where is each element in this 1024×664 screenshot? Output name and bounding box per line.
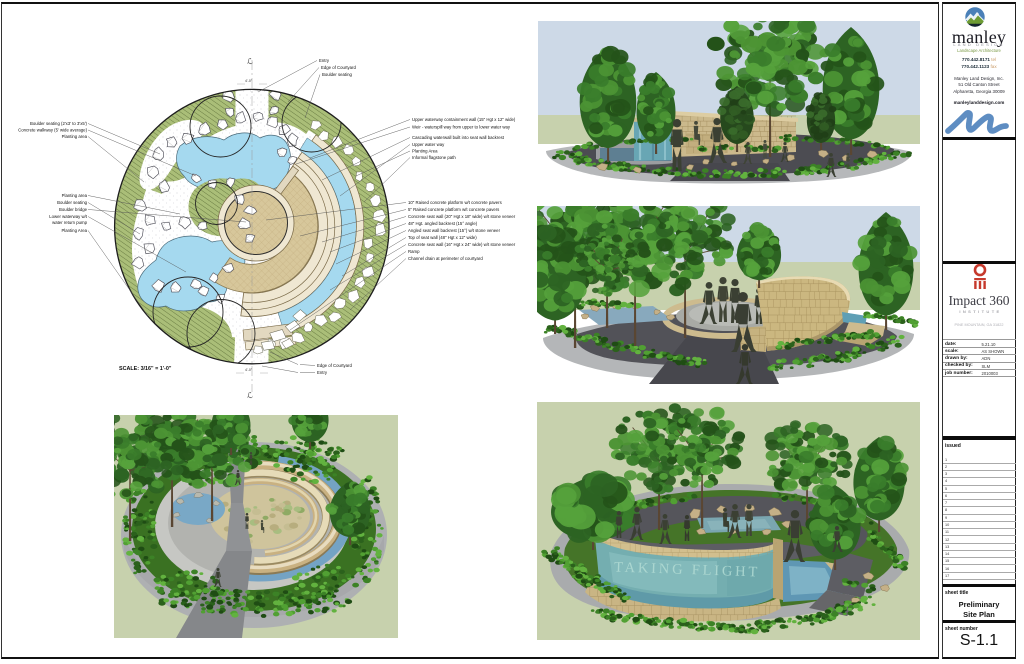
- svg-text:10" Raised concrete platform w: 10" Raised concrete platform w/t concret…: [408, 200, 502, 205]
- svg-text:5" Raised concrete platform w/: 5" Raised concrete platform w/t concrete…: [408, 207, 499, 212]
- svg-text:water return pump: water return pump: [52, 220, 87, 225]
- svg-text:Ramp: Ramp: [408, 249, 420, 254]
- svg-text:Informal flagstone path: Informal flagstone path: [412, 155, 456, 160]
- svg-text:Entry: Entry: [319, 58, 330, 63]
- svg-text:Edge of Courtyard: Edge of Courtyard: [317, 363, 352, 368]
- svg-text:Lower waterway w/t: Lower waterway w/t: [49, 214, 88, 219]
- svg-text:Concrete walkway (5' wide aver: Concrete walkway (5' wide average): [18, 128, 87, 133]
- svg-text:Boulder seating (2'x3' to 3'x5: Boulder seating (2'x3' to 3'x5'): [30, 121, 88, 126]
- svg-text:48" Hgt. angled backrest (15°: 48" Hgt. angled backrest (15° angle): [408, 221, 478, 226]
- svg-text:Planting area: Planting area: [62, 193, 88, 198]
- svg-text:Entry: Entry: [317, 370, 328, 375]
- svg-text:Weir - waterspill way from upp: Weir - waterspill way from upper to lowe…: [412, 125, 511, 130]
- svg-text:Boulder seating: Boulder seating: [322, 72, 352, 77]
- svg-text:Concrete seat wall (16" Hgt x: Concrete seat wall (16" Hgt x 24" wide) …: [408, 242, 516, 247]
- svg-text:Edge of Courtyard: Edge of Courtyard: [321, 65, 356, 70]
- svg-text:Cascading waterwall built into: Cascading waterwall built into seat wall…: [412, 135, 505, 140]
- svg-text:Planting Area: Planting Area: [61, 228, 87, 233]
- svg-text:Planting Area: Planting Area: [412, 149, 438, 154]
- svg-text:Top of seat wall (48" Hgt x 12: Top of seat wall (48" Hgt x 12" wide): [408, 235, 477, 240]
- svg-text:Concrete seat wall (20" Hgt x: Concrete seat wall (20" Hgt x 18" wide) …: [408, 214, 516, 219]
- svg-text:Planting area: Planting area: [62, 134, 88, 139]
- svg-text:Upper water way: Upper water way: [412, 142, 445, 147]
- svg-text:Channel drain at perimeter of: Channel drain at perimeter of courtyard: [408, 256, 483, 261]
- svg-text:Upper waterway containment wal: Upper waterway containment wall (15" Hgt…: [412, 117, 516, 122]
- svg-text:Angled seat wall backrest (15°: Angled seat wall backrest (15°) w/t ston…: [408, 228, 501, 233]
- svg-text:Boulder seating: Boulder seating: [57, 200, 87, 205]
- svg-text:Boulder bridge: Boulder bridge: [59, 207, 88, 212]
